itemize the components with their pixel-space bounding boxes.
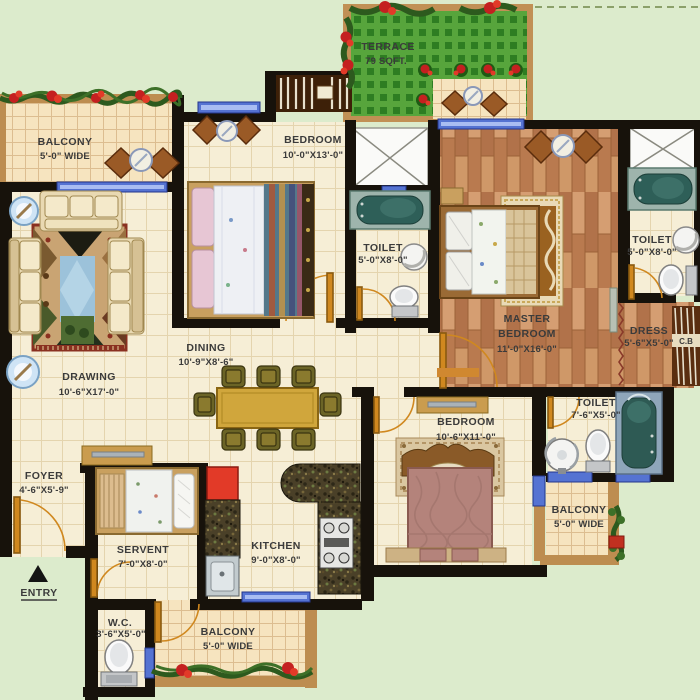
svg-text:10'-6"X11'-0": 10'-6"X11'-0" (436, 432, 496, 443)
svg-text:5'-0"X8'-0": 5'-0"X8'-0" (358, 255, 408, 266)
svg-text:BALCONY: BALCONY (552, 504, 607, 516)
svg-text:10'-6"X17'-0": 10'-6"X17'-0" (59, 387, 120, 398)
svg-text:TOILET: TOILET (363, 242, 403, 254)
svg-text:TOILET: TOILET (576, 397, 616, 409)
svg-text:TERRACE: TERRACE (361, 41, 415, 53)
svg-text:10'-9"X8'-6": 10'-9"X8'-6" (178, 357, 233, 368)
svg-text:5'-0"X8'-0": 5'-0"X8'-0" (627, 247, 677, 258)
svg-text:3'-6"X5'-0": 3'-6"X5'-0" (96, 629, 146, 640)
svg-text:BEDROOM: BEDROOM (437, 416, 495, 428)
svg-text:7'-6"X5'-0": 7'-6"X5'-0" (571, 410, 621, 421)
svg-text:C.B: C.B (679, 337, 693, 346)
svg-text:DRAWING: DRAWING (62, 371, 116, 383)
svg-text:4'-6"X5'-9": 4'-6"X5'-9" (19, 485, 69, 496)
svg-text:BALCONY: BALCONY (201, 626, 256, 638)
svg-text:5'-0" WIDE: 5'-0" WIDE (554, 519, 604, 530)
svg-text:KITCHEN: KITCHEN (251, 540, 300, 552)
svg-text:11'-0"X16'-0": 11'-0"X16'-0" (497, 344, 557, 355)
svg-text:7'-0"X8'-0": 7'-0"X8'-0" (118, 559, 168, 570)
svg-text:BALCONY: BALCONY (38, 136, 93, 148)
svg-text:BEDROOM: BEDROOM (498, 328, 556, 340)
svg-text:MASTER: MASTER (504, 313, 551, 325)
svg-text:5'-0" WIDE: 5'-0" WIDE (203, 641, 253, 652)
svg-text:79 SQFT.: 79 SQFT. (365, 56, 407, 67)
svg-text:W.C.: W.C. (108, 617, 132, 629)
svg-text:TOILET: TOILET (632, 234, 672, 246)
svg-text:5'-0" WIDE: 5'-0" WIDE (40, 151, 90, 162)
svg-text:DINING: DINING (186, 342, 225, 354)
svg-text:SERVENT: SERVENT (117, 544, 169, 556)
svg-text:DRESS: DRESS (630, 325, 668, 337)
svg-text:9'-0"X8'-0": 9'-0"X8'-0" (251, 555, 301, 566)
svg-text:ENTRY: ENTRY (20, 587, 57, 599)
svg-text:BEDROOM: BEDROOM (284, 134, 342, 146)
svg-text:5'-6"X5'-0": 5'-6"X5'-0" (624, 338, 674, 349)
svg-text:10'-0"X13'-0": 10'-0"X13'-0" (283, 150, 344, 161)
svg-text:FOYER: FOYER (25, 470, 63, 482)
